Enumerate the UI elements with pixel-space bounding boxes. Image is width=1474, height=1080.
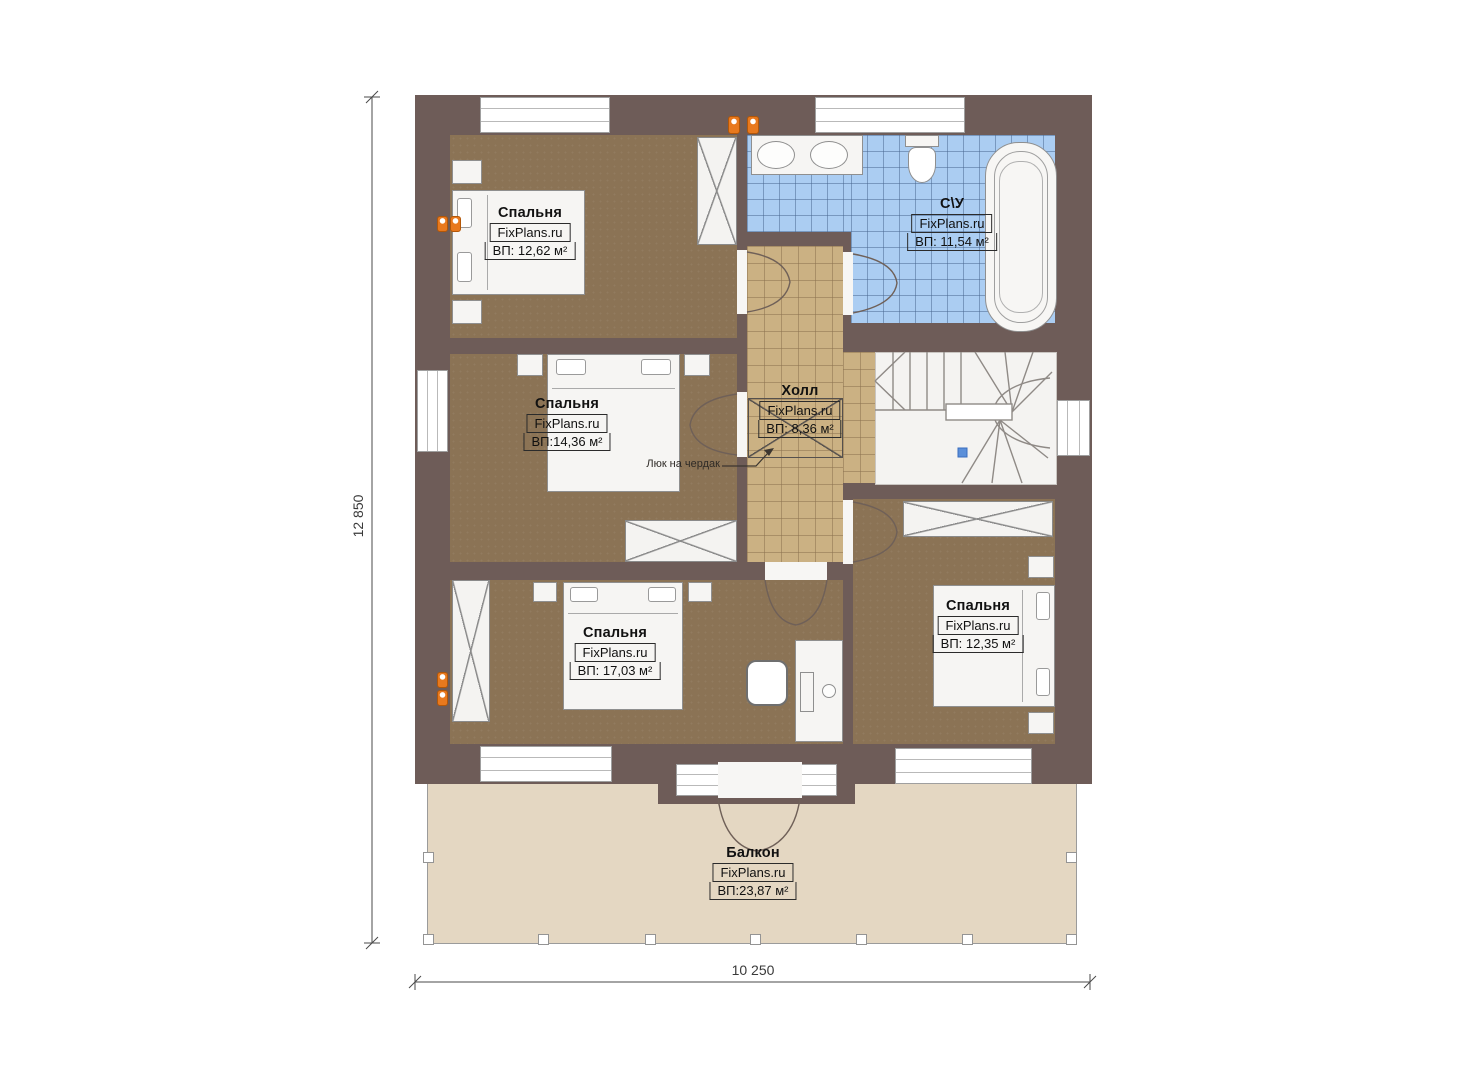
- stair-direction-marker: [958, 448, 967, 457]
- room-name: С\У: [907, 196, 997, 212]
- brand-label: FixPlans.ru: [526, 414, 607, 433]
- room-name: Спальня: [570, 625, 661, 641]
- room-label-bedroom-bottom-left: Спальня FixPlans.ru ВП: 17,03 м²: [570, 625, 661, 680]
- area-label: ВП: 11,54 м²: [907, 233, 997, 251]
- door-arc-bedroom-br: [853, 502, 897, 562]
- brand-label: FixPlans.ru: [712, 863, 793, 882]
- brand-label: FixPlans.ru: [489, 223, 570, 242]
- room-name: Спальня: [933, 598, 1024, 614]
- area-label: ВП: 12,35 м²: [933, 635, 1024, 653]
- room-name: Балкон: [709, 845, 796, 861]
- room-label-hall: Холл FixPlans.ru ВП: 8,36 м²: [758, 383, 841, 438]
- linework-overlay: [0, 0, 1474, 1080]
- brand-label: FixPlans.ru: [937, 616, 1018, 635]
- dimension-width: 10 250: [710, 962, 796, 978]
- area-label: ВП:23,87 м²: [709, 882, 796, 900]
- door-arc-bathroom: [853, 254, 897, 313]
- area-label: ВП: 12,62 м²: [485, 242, 576, 260]
- area-label: ВП: 17,03 м²: [570, 662, 661, 680]
- area-label: ВП: 8,36 м²: [758, 420, 841, 438]
- floor-plan: Спальня FixPlans.ru ВП: 12,62 м² С\У Fix…: [0, 0, 1474, 1080]
- area-label: ВП:14,36 м²: [523, 433, 610, 451]
- brand-label: FixPlans.ru: [759, 401, 840, 420]
- door-arc-bedroom-bl: [765, 580, 827, 625]
- room-name: Спальня: [485, 205, 576, 221]
- room-label-bedroom-middle-left: Спальня FixPlans.ru ВП:14,36 м²: [523, 396, 610, 451]
- door-arc-balcony: [718, 798, 800, 851]
- door-arc-bedroom-tl: [747, 252, 790, 312]
- brand-label: FixPlans.ru: [911, 214, 992, 233]
- room-label-bedroom-bottom-right: Спальня FixPlans.ru ВП: 12,35 м²: [933, 598, 1024, 653]
- door-arc-bedroom-ml: [690, 394, 737, 455]
- attic-hatch-leader: [722, 448, 774, 466]
- staircase-treads: [875, 352, 1052, 483]
- room-label-bathroom: С\У FixPlans.ru ВП: 11,54 м²: [907, 196, 997, 251]
- room-name: Спальня: [523, 396, 610, 412]
- room-label-balcony: Балкон FixPlans.ru ВП:23,87 м²: [709, 845, 796, 900]
- door-swings: [690, 252, 897, 851]
- room-name: Холл: [758, 383, 841, 399]
- dimension-height: 12 850: [350, 484, 366, 548]
- brand-label: FixPlans.ru: [574, 643, 655, 662]
- attic-hatch-note: Люк на чердак: [615, 458, 720, 470]
- room-label-bedroom-top-left: Спальня FixPlans.ru ВП: 12,62 м²: [485, 205, 576, 260]
